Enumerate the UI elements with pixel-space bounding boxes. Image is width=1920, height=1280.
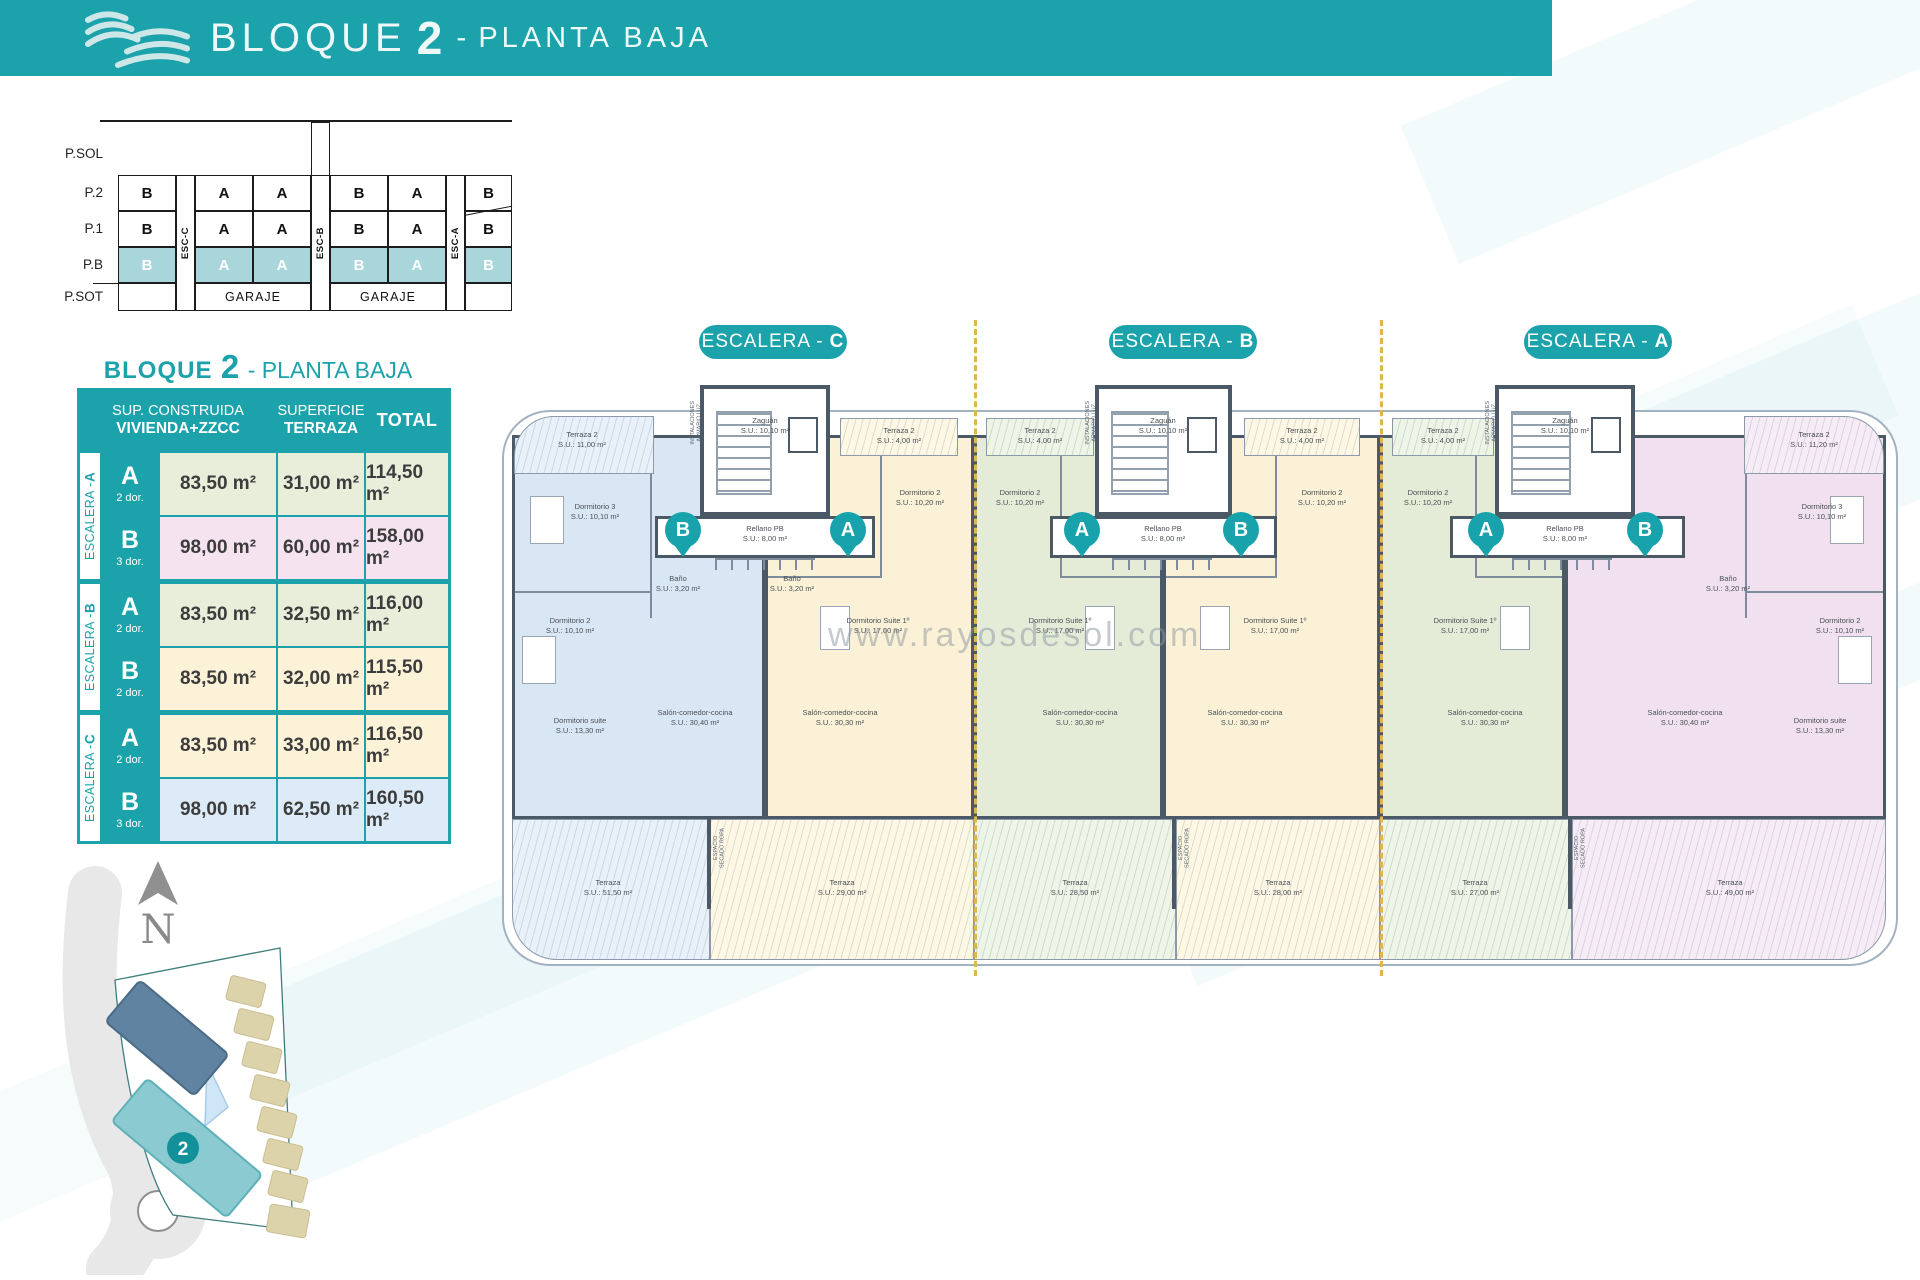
room-label-rellano: Rellano PB S.U.: 8,00 m² xyxy=(743,524,787,544)
stack-cell-pb: A xyxy=(388,247,446,283)
stack-cell: A xyxy=(195,211,253,247)
elevator-icon xyxy=(1591,417,1621,453)
room-label: Terraza S.U.: 27,00 m² xyxy=(1451,878,1499,898)
room-label: Dormitorio 3 S.U.: 10,10 m² xyxy=(1798,502,1846,522)
room-label: Terraza S.U.: 49,00 m² xyxy=(1706,878,1754,898)
pin-a-a: A xyxy=(1468,512,1504,548)
room-label-secado: ESPACIO SECADO ROPA xyxy=(713,828,726,868)
floor-label-pb: P.B xyxy=(53,257,103,272)
header-title-block: BLOQUE xyxy=(210,16,407,61)
cell-built: 83,50 m² xyxy=(160,715,276,777)
psot-empty-cell xyxy=(118,283,176,311)
pill-prefix: ESCALERA - xyxy=(1112,331,1234,353)
group-separator xyxy=(80,712,448,713)
interior-wall xyxy=(1747,591,1883,593)
room-label: Salón-comedor-cocina S.U.: 30,30 m² xyxy=(802,708,877,728)
table-title-block: BLOQUE xyxy=(104,357,213,384)
esc-b-label: ESC-B xyxy=(315,227,326,259)
unit-badge: A 2 dor. xyxy=(102,715,158,777)
col-header-built: SUP. CONSTRUIDA VIVIENDA+ZZCC xyxy=(80,391,276,451)
cell-total: 116,50 m² xyxy=(366,715,448,777)
block-2-badge-label: 2 xyxy=(178,1139,189,1160)
interior-wall xyxy=(1477,576,1562,578)
pin-b-a: A xyxy=(1064,512,1100,548)
escalera-pill-a: ESCALERA - A xyxy=(1524,325,1672,359)
room-label: Terraza 2 S.U.: 4,00 m² xyxy=(1421,426,1465,446)
pin-b-b: B xyxy=(1223,512,1259,548)
unit-dorms: 2 dor. xyxy=(116,688,144,699)
stack-cell: B xyxy=(330,175,388,211)
room-label-secado: ESPACIO SECADO ROPA xyxy=(1178,828,1191,868)
cell-terrace: 32,50 m² xyxy=(278,584,364,646)
stack-cell: A xyxy=(388,211,446,247)
unit-letter: A xyxy=(121,464,139,489)
unit-dorms: 2 dor. xyxy=(116,493,144,504)
interior-wall xyxy=(1062,576,1160,578)
esc-b-tower xyxy=(311,122,330,177)
esc-shaft-c: ESC-C xyxy=(176,175,195,311)
esc-shaft-b: ESC-B xyxy=(311,175,330,311)
room-label: Dormitorio 2 S.U.: 10,20 m² xyxy=(896,488,944,508)
sitemap: 2 N xyxy=(55,845,375,1275)
col-header-built-l2: VIVIENDA+ZZCC xyxy=(116,420,240,439)
room-label: Terraza S.U.: 51,50 m² xyxy=(584,878,632,898)
esc-c-label: ESC-C xyxy=(180,227,191,259)
unit-badge: B 3 dor. xyxy=(102,517,158,579)
col-header-total-label: TOTAL xyxy=(377,410,438,432)
group-label-letter: A xyxy=(83,472,98,482)
watermark: www.rayosdesol.com xyxy=(828,616,1201,655)
cell-terrace: 32,00 m² xyxy=(278,648,364,710)
room-label: Terraza S.U.: 29,00 m² xyxy=(818,878,866,898)
group-label-letter: B xyxy=(83,603,98,613)
table-title-floor: - PLANTA BAJA xyxy=(248,357,412,383)
room-label: Salón-comedor-cocina S.U.: 30,30 m² xyxy=(1207,708,1282,728)
storage-lockers xyxy=(715,558,815,570)
garaje-cell: GARAJE xyxy=(195,283,311,311)
interior-wall xyxy=(515,591,650,593)
page: { "header": { "title_block": "BLOQUE", "… xyxy=(0,0,1920,1280)
room-label: Dormitorio 2 S.U.: 10,20 m² xyxy=(1298,488,1346,508)
stack-cell-pb: A xyxy=(253,247,311,283)
room-label-instalaciones: INSTALACIONES ARMARIO LUZ xyxy=(1085,401,1098,445)
col-header-total: TOTAL xyxy=(366,391,448,451)
cell-built: 83,50 m² xyxy=(160,648,276,710)
cell-total: 114,50 m² xyxy=(366,453,448,515)
unit-dorms: 3 dor. xyxy=(116,557,144,568)
room-label-zaguan: Zaguán S.U.: 10,10 m² xyxy=(1139,416,1187,436)
unit-dorms: 2 dor. xyxy=(116,624,144,635)
stair-core-a xyxy=(1495,385,1635,516)
storage-lockers xyxy=(1512,558,1612,570)
room-label: Terraza S.U.: 28,50 m² xyxy=(1051,878,1099,898)
room-label: Dormitorio 2 S.U.: 10,20 m² xyxy=(1404,488,1452,508)
elevator-icon xyxy=(788,417,818,453)
col-header-built-l1: SUP. CONSTRUIDA xyxy=(112,403,244,420)
group-label-escalera-c: ESCALERA - C xyxy=(80,715,100,841)
group-label-escalera-a: ESCALERA - A xyxy=(80,453,100,579)
unit-letter: B xyxy=(121,790,139,815)
pin-c-b: B xyxy=(665,512,701,548)
col-header-terrace: SUPERFICIE TERRAZA xyxy=(278,391,364,451)
unit-badge: A 2 dor. xyxy=(102,584,158,646)
room-label: Dormitorio suite S.U.: 13,30 m² xyxy=(554,716,607,736)
floor-plan: ESCALERA - C ESCALERA - B ESCALERA - A xyxy=(500,316,1900,996)
room-label-instalaciones: INSTALACIONES ARMARIO LUZ xyxy=(690,401,703,445)
room-label: Dormitorio 2 S.U.: 10,10 m² xyxy=(1816,616,1864,636)
group-separator xyxy=(80,581,448,582)
stack-cell-pb: B xyxy=(118,247,176,283)
cell-terrace: 62,50 m² xyxy=(278,779,364,841)
pill-prefix: ESCALERA - xyxy=(702,331,824,353)
floor-label-p1: P.1 xyxy=(53,221,103,236)
north-label: N xyxy=(141,907,176,953)
storage-lockers xyxy=(1112,558,1212,570)
stack-cell-pb: B xyxy=(330,247,388,283)
pill-prefix: ESCALERA - xyxy=(1527,331,1649,353)
stair-core-b xyxy=(1095,385,1232,516)
room-label: Terraza 2 S.U.: 4,00 m² xyxy=(1018,426,1062,446)
room-label: Salón-comedor-cocina S.U.: 30,40 m² xyxy=(1647,708,1722,728)
cell-total: 116,00 m² xyxy=(366,584,448,646)
header-title-floor: PLANTA BAJA xyxy=(478,22,712,55)
cell-total: 160,50 m² xyxy=(366,779,448,841)
header-title-number: 2 xyxy=(417,11,443,65)
terrace-divider-wall xyxy=(707,819,711,909)
unit-badge: B 3 dor. xyxy=(102,779,158,841)
pin-c-a: A xyxy=(830,512,866,548)
esc-shaft-a: ESC-A xyxy=(446,175,465,311)
cell-total: 115,50 m² xyxy=(366,648,448,710)
group-label-prefix: ESCALERA - xyxy=(83,482,97,560)
room-label: Terraza 2 S.U.: 11,00 m² xyxy=(558,430,606,450)
stack-cell: B xyxy=(465,175,512,211)
bed-furniture xyxy=(530,496,564,544)
bed-furniture xyxy=(1500,606,1530,650)
unit-letter: A xyxy=(121,726,139,751)
room-label: Dormitorio Suite 1º S.U.: 17,00 m² xyxy=(1434,616,1497,636)
room-label-instalaciones: INSTALACIONES ARMARIO LUZ xyxy=(1485,401,1498,445)
stack-cell: A xyxy=(388,175,446,211)
cell-total: 158,00 m² xyxy=(366,517,448,579)
room-label: Baño S.U.: 3,20 m² xyxy=(1706,574,1750,594)
room-label: Dormitorio 3 S.U.: 10,10 m² xyxy=(571,502,619,522)
room-label: Baño S.U.: 3,20 m² xyxy=(770,574,814,594)
summary-table: SUP. CONSTRUIDA VIVIENDA+ZZCC SUPERFICIE… xyxy=(77,388,451,844)
escalera-pill-c: ESCALERA - C xyxy=(699,325,847,359)
north-arrow-icon xyxy=(138,861,178,905)
solarium-roof-line xyxy=(100,120,512,122)
unit-badge: B 2 dor. xyxy=(102,648,158,710)
stack-cell: B xyxy=(118,211,176,247)
elevator-icon xyxy=(1187,417,1217,453)
cell-built: 98,00 m² xyxy=(160,517,276,579)
room-label: Dormitorio 2 S.U.: 10,20 m² xyxy=(996,488,1044,508)
table-title: BLOQUE 2 - PLANTA BAJA xyxy=(77,348,439,386)
room-label: Terraza 2 S.U.: 11,20 m² xyxy=(1790,430,1838,450)
room-label-rellano: Rellano PB S.U.: 8,00 m² xyxy=(1141,524,1185,544)
section-divider xyxy=(1380,320,1383,976)
room-label-zaguan: Zaguán S.U.: 10,10 m² xyxy=(741,416,789,436)
escalera-pill-b: ESCALERA - B xyxy=(1109,325,1257,359)
stack-diagram: P.SOL P.2 P.1 P.B P.SOT B A A B A B B A … xyxy=(95,118,535,323)
stack-cell: B xyxy=(465,211,512,247)
room-label-rellano: Rellano PB S.U.: 8,00 m² xyxy=(1543,524,1587,544)
stack-cell: A xyxy=(195,175,253,211)
group-label-prefix: ESCALERA - xyxy=(83,613,97,691)
room-label: Terraza 2 S.U.: 4,00 m² xyxy=(877,426,921,446)
interior-wall xyxy=(1166,576,1277,578)
garaje-cell: GARAJE xyxy=(330,283,446,311)
room-label: Dormitorio Suite 1º S.U.: 17,00 m² xyxy=(1244,616,1307,636)
floor-label-p2: P.2 xyxy=(53,185,103,200)
pill-letter: C xyxy=(830,331,845,353)
col-header-terrace-l1: SUPERFICIE xyxy=(278,403,365,420)
group-label-letter: C xyxy=(83,734,98,744)
logo-glyph xyxy=(88,14,187,65)
cell-built: 98,00 m² xyxy=(160,779,276,841)
stack-cell: A xyxy=(253,175,311,211)
pill-letter: A xyxy=(1655,331,1670,353)
col-header-terrace-l2: TERRAZA xyxy=(284,420,358,439)
header-title: BLOQUE 2 - PLANTA BAJA xyxy=(210,0,712,76)
bed-furniture xyxy=(522,636,556,684)
cell-terrace: 60,00 m² xyxy=(278,517,364,579)
stack-cell-pb: A xyxy=(195,247,253,283)
unit-dorms: 2 dor. xyxy=(116,755,144,766)
room-label-secado: ESPACIO SECADO ROPA xyxy=(1574,828,1587,868)
cell-built: 83,50 m² xyxy=(160,584,276,646)
floor-label-psol: P.SOL xyxy=(53,146,103,161)
room-label: Salón-comedor-cocina S.U.: 30,30 m² xyxy=(1042,708,1117,728)
unit-letter: B xyxy=(121,659,139,684)
stack-cell: A xyxy=(253,211,311,247)
room-label: Salón-comedor-cocina S.U.: 30,40 m² xyxy=(657,708,732,728)
pin-a-b: B xyxy=(1627,512,1663,548)
terrace-divider-wall xyxy=(1172,819,1176,909)
bed-furniture xyxy=(1200,606,1230,650)
room-label: Salón-comedor-cocina S.U.: 30,30 m² xyxy=(1447,708,1522,728)
room-label: Dormitorio 2 S.U.: 10,10 m² xyxy=(546,616,594,636)
interior-wall xyxy=(880,438,882,578)
unit-dorms: 3 dor. xyxy=(116,819,144,830)
room-label: Terraza 2 S.U.: 4,00 m² xyxy=(1280,426,1324,446)
unit-letter: B xyxy=(121,528,139,553)
esc-a-label: ESC-A xyxy=(450,227,461,259)
stack-cell: B xyxy=(330,211,388,247)
group-label-prefix: ESCALERA - xyxy=(83,744,97,822)
cell-terrace: 31,00 m² xyxy=(278,453,364,515)
group-label-escalera-b: ESCALERA - B xyxy=(80,584,100,710)
room-label-zaguan: Zaguán S.U.: 10,10 m² xyxy=(1541,416,1589,436)
stair-core-c xyxy=(700,385,830,516)
stack-cell-pb: B xyxy=(465,247,512,283)
cell-built: 83,50 m² xyxy=(160,453,276,515)
header-title-dash: - xyxy=(456,21,466,55)
psot-empty-cell xyxy=(465,283,512,311)
cell-terrace: 33,00 m² xyxy=(278,715,364,777)
stack-cell: B xyxy=(118,175,176,211)
psot-line xyxy=(93,283,118,284)
logo xyxy=(85,8,190,68)
room-label: Terraza S.U.: 28,00 m² xyxy=(1254,878,1302,898)
floor-label-psot: P.SOT xyxy=(53,289,103,304)
unit-letter: A xyxy=(121,595,139,620)
bed-furniture xyxy=(1838,636,1872,684)
terrace-divider-wall xyxy=(1568,819,1572,909)
room-label: Dormitorio suite S.U.: 13,30 m² xyxy=(1794,716,1847,736)
unit-badge: A 2 dor. xyxy=(102,453,158,515)
room-label: Baño S.U.: 3,20 m² xyxy=(656,574,700,594)
pill-letter: B xyxy=(1240,331,1255,353)
table-title-number: 2 xyxy=(221,348,239,385)
